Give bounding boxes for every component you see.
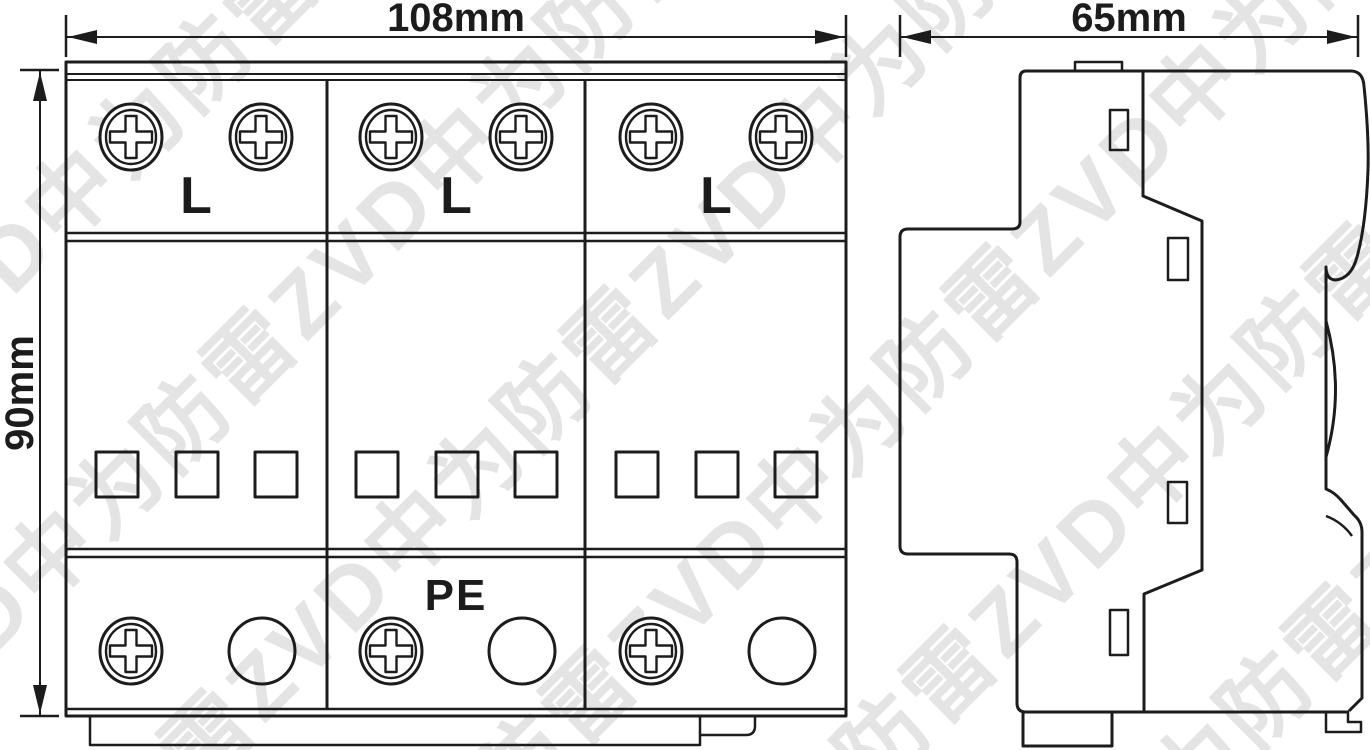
arrowhead-right-icon (815, 30, 844, 44)
dimension-depth-65mm: 65mm (900, 0, 1358, 57)
dimension-drawing-canvas: ZVD中为防雷ZVD中为防雷ZVD中为防雷ZVD中为防雷ZVD中为防雷 ZVD中… (0, 0, 1370, 750)
width-dimension-label: 108mm (387, 0, 525, 40)
depth-dimension-label: 65mm (1071, 0, 1187, 40)
indicator-window (696, 452, 738, 497)
line-terminal-label: L (700, 167, 732, 225)
ventilation-slot (1110, 110, 1128, 150)
indicator-window (515, 452, 557, 497)
indicator-window (176, 452, 218, 497)
indicator-window (775, 452, 817, 497)
indicator-window (255, 452, 297, 497)
arrowhead-right-icon (1327, 30, 1356, 44)
din-rail-clip-profile (1326, 71, 1368, 711)
indicator-window (356, 452, 398, 497)
arrowhead-up-icon (33, 72, 47, 101)
base-pedestal (90, 716, 700, 745)
terminal-screw-icon (360, 104, 422, 170)
arrowhead-left-icon (902, 30, 931, 44)
mounting-foot (1326, 712, 1361, 732)
wire-hole (489, 618, 555, 684)
wire-hole (229, 618, 295, 684)
ventilation-slot (1110, 610, 1128, 655)
line-terminal-label: L (180, 167, 212, 225)
terminal-screw-icon (750, 104, 812, 170)
arrowhead-left-icon (68, 30, 97, 44)
wire-hole (749, 618, 815, 684)
arrowhead-down-icon (33, 685, 47, 714)
front-view: L L L PE (66, 62, 846, 745)
ventilation-slot (1168, 238, 1188, 280)
pe-terminal-label: PE (425, 571, 488, 620)
terminal-screw-icon (230, 104, 292, 170)
base-pedestal-tab (700, 716, 755, 735)
ventilation-slot (1168, 482, 1187, 523)
side-housing-outline (900, 71, 1352, 712)
indicator-window (96, 452, 138, 497)
indicator-window (436, 452, 478, 497)
side-view (900, 62, 1368, 746)
mounting-foot (1023, 712, 1112, 746)
terminal-screw-icon (620, 104, 682, 170)
terminal-screw-icon (100, 104, 162, 170)
terminal-screw-icon (490, 104, 552, 170)
terminal-screw-icon (360, 618, 422, 684)
front-face-profile-line (1143, 71, 1202, 712)
line-terminal-label: L (440, 167, 472, 225)
spd-technical-drawing: L L L PE 108mm 90mm 6 (0, 0, 1370, 750)
terminal-screw-icon (620, 618, 682, 684)
indicator-window (616, 452, 658, 497)
height-dimension-label: 90mm (0, 335, 42, 451)
dimension-width-108mm: 108mm (66, 0, 846, 57)
terminal-screw-icon (100, 618, 162, 684)
dimension-height-90mm: 90mm (0, 70, 59, 716)
clip-claw-line (1326, 516, 1352, 536)
